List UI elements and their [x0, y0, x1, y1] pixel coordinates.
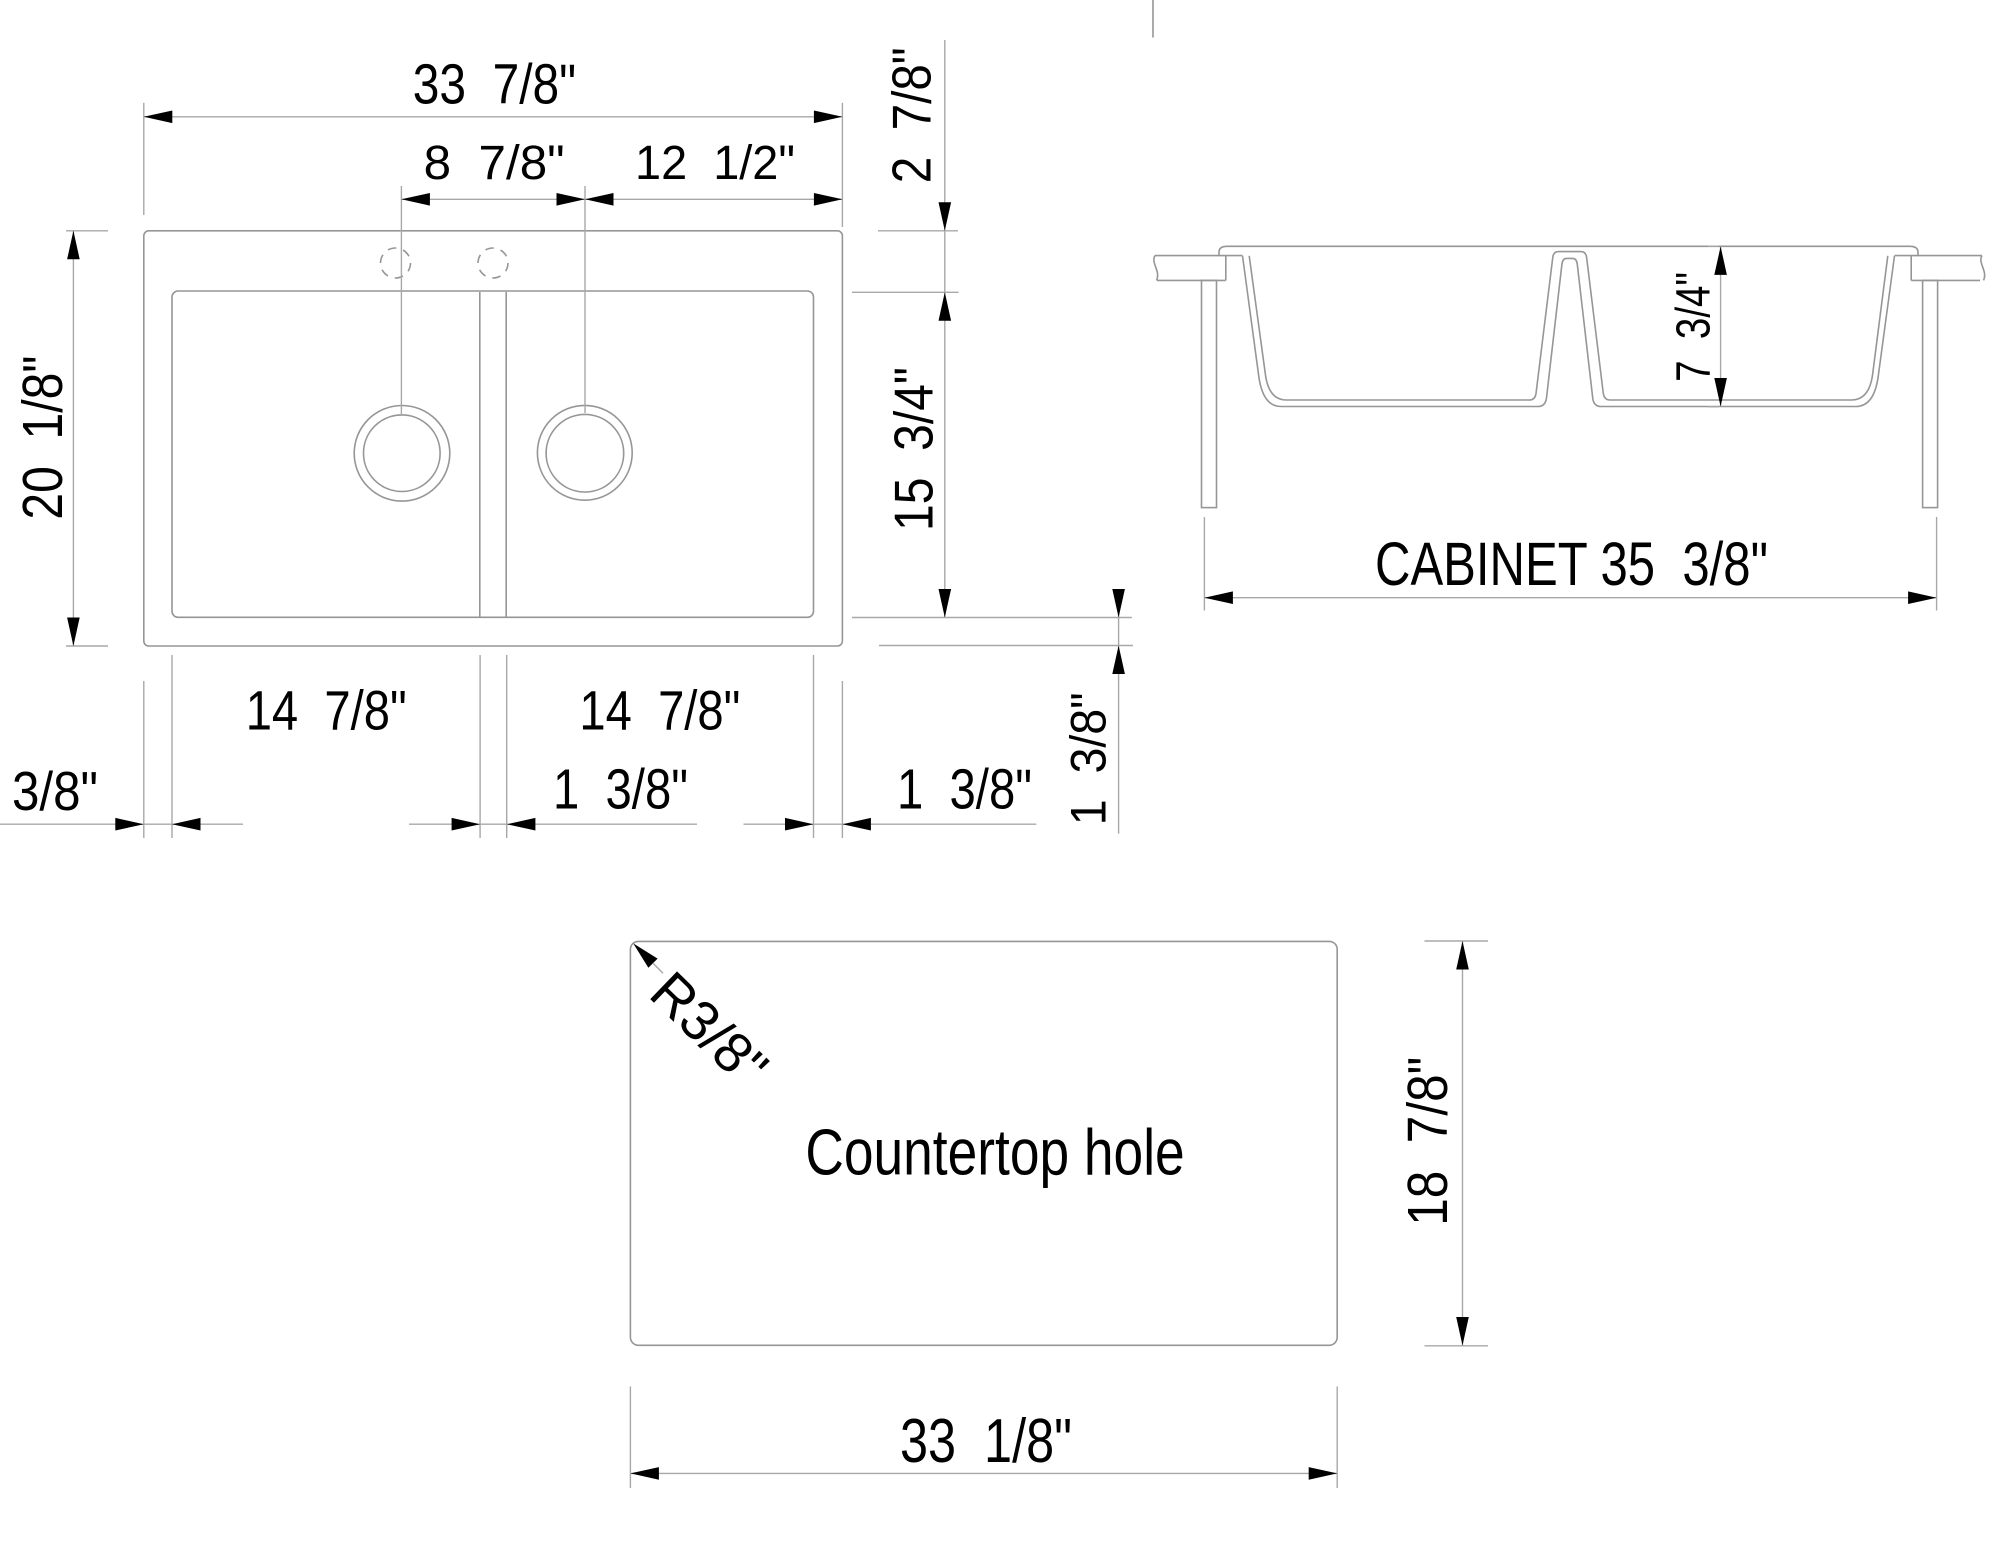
- svg-text:33 1/8": 33 1/8": [900, 1407, 1072, 1476]
- svg-text:33 7/8": 33 7/8": [413, 53, 577, 117]
- svg-text:1 3/8": 1 3/8": [553, 758, 688, 822]
- svg-text:8 7/8": 8 7/8": [424, 137, 565, 190]
- svg-text:CABINET 35 3/8": CABINET 35 3/8": [1375, 530, 1768, 598]
- svg-text:14 7/8": 14 7/8": [579, 679, 740, 742]
- svg-text:Countertop hole: Countertop hole: [805, 1116, 1184, 1189]
- svg-text:2 7/8": 2 7/8": [880, 47, 942, 183]
- svg-text:15 3/4": 15 3/4": [883, 367, 945, 531]
- svg-text:1 3/8": 1 3/8": [897, 758, 1032, 822]
- svg-text:12 1/2": 12 1/2": [635, 137, 795, 190]
- svg-text:R3/8": R3/8": [639, 959, 781, 1099]
- svg-text:3/8": 3/8": [12, 760, 98, 822]
- svg-text:1 3/8": 1 3/8": [1061, 692, 1117, 825]
- svg-text:20 1/8": 20 1/8": [11, 356, 75, 520]
- svg-text:18 7/8": 18 7/8": [1396, 1057, 1460, 1226]
- svg-text:7 3/4": 7 3/4": [1668, 272, 1721, 382]
- svg-text:14 7/8": 14 7/8": [246, 679, 407, 742]
